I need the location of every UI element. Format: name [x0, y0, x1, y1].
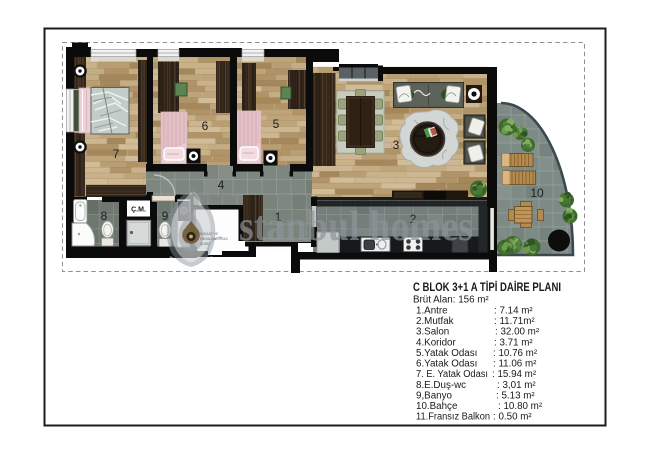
svg-text:: 11.71m²: : 11.71m²	[494, 316, 535, 327]
svg-text:8: 8	[101, 209, 108, 223]
svg-text:: 7.14 m²: : 7.14 m²	[494, 305, 533, 316]
svg-text:: 10.80 m²: : 10.80 m²	[498, 401, 543, 412]
svg-text:: 15.94 m²: : 15.94 m²	[492, 369, 537, 380]
svg-text:Ç.M.: Ç.M.	[131, 207, 146, 214]
svg-text:ŞUBE: ŞUBE	[200, 242, 210, 246]
svg-text:10: 10	[530, 186, 544, 200]
svg-text:6: 6	[202, 119, 209, 133]
svg-text:1.Antre: 1.Antre	[416, 305, 448, 316]
svg-text:7. E. Yatak Odası: 7. E. Yatak Odası	[416, 369, 488, 380]
svg-text:10.Bahçe: 10.Bahçe	[416, 401, 458, 412]
svg-text:11.Fransız Balkon: 11.Fransız Balkon	[416, 412, 490, 423]
svg-text:6.Yatak Odası: 6.Yatak Odası	[416, 359, 477, 370]
svg-text:9,Banyo: 9,Banyo	[416, 390, 453, 401]
svg-text:5: 5	[273, 117, 280, 131]
svg-text:5.Yatak Odası: 5.Yatak Odası	[416, 348, 477, 359]
svg-text:: 5.13 m²: : 5.13 m²	[496, 390, 535, 401]
svg-text:4: 4	[218, 178, 225, 192]
svg-text:stanbul homes: stanbul homes	[239, 203, 473, 250]
svg-text:: 3,01 m²: : 3,01 m²	[497, 380, 536, 391]
svg-text:2.Mutfak: 2.Mutfak	[416, 316, 454, 327]
svg-text:7: 7	[113, 147, 120, 161]
svg-text:: 32.00 m²: : 32.00 m²	[495, 327, 540, 338]
svg-text:C BLOK 3+1 A TİPİ DAİRE PLANI: C BLOK 3+1 A TİPİ DAİRE PLANI	[413, 281, 561, 294]
svg-text:HAVALANDIRMA: HAVALANDIRMA	[200, 237, 228, 241]
svg-text:İNŞAAT VE: İNŞAAT VE	[200, 231, 219, 236]
svg-text:Brüt Alan: 156 m²: Brüt Alan: 156 m²	[413, 295, 489, 306]
svg-text:: 3.71 m²: : 3.71 m²	[494, 337, 533, 348]
svg-text:8.E.Duş-wc: 8.E.Duş-wc	[416, 380, 466, 391]
svg-text:: 11.06 m²: : 11.06 m²	[493, 359, 537, 370]
svg-text:3: 3	[393, 138, 400, 152]
svg-text:: 10.76 m²: : 10.76 m²	[493, 348, 538, 359]
svg-text:9: 9	[162, 209, 169, 223]
svg-text:4.Koridor: 4.Koridor	[416, 337, 456, 348]
svg-text:: 0.50 m²: : 0.50 m²	[493, 412, 532, 423]
svg-text:3.Salon: 3.Salon	[416, 327, 449, 338]
